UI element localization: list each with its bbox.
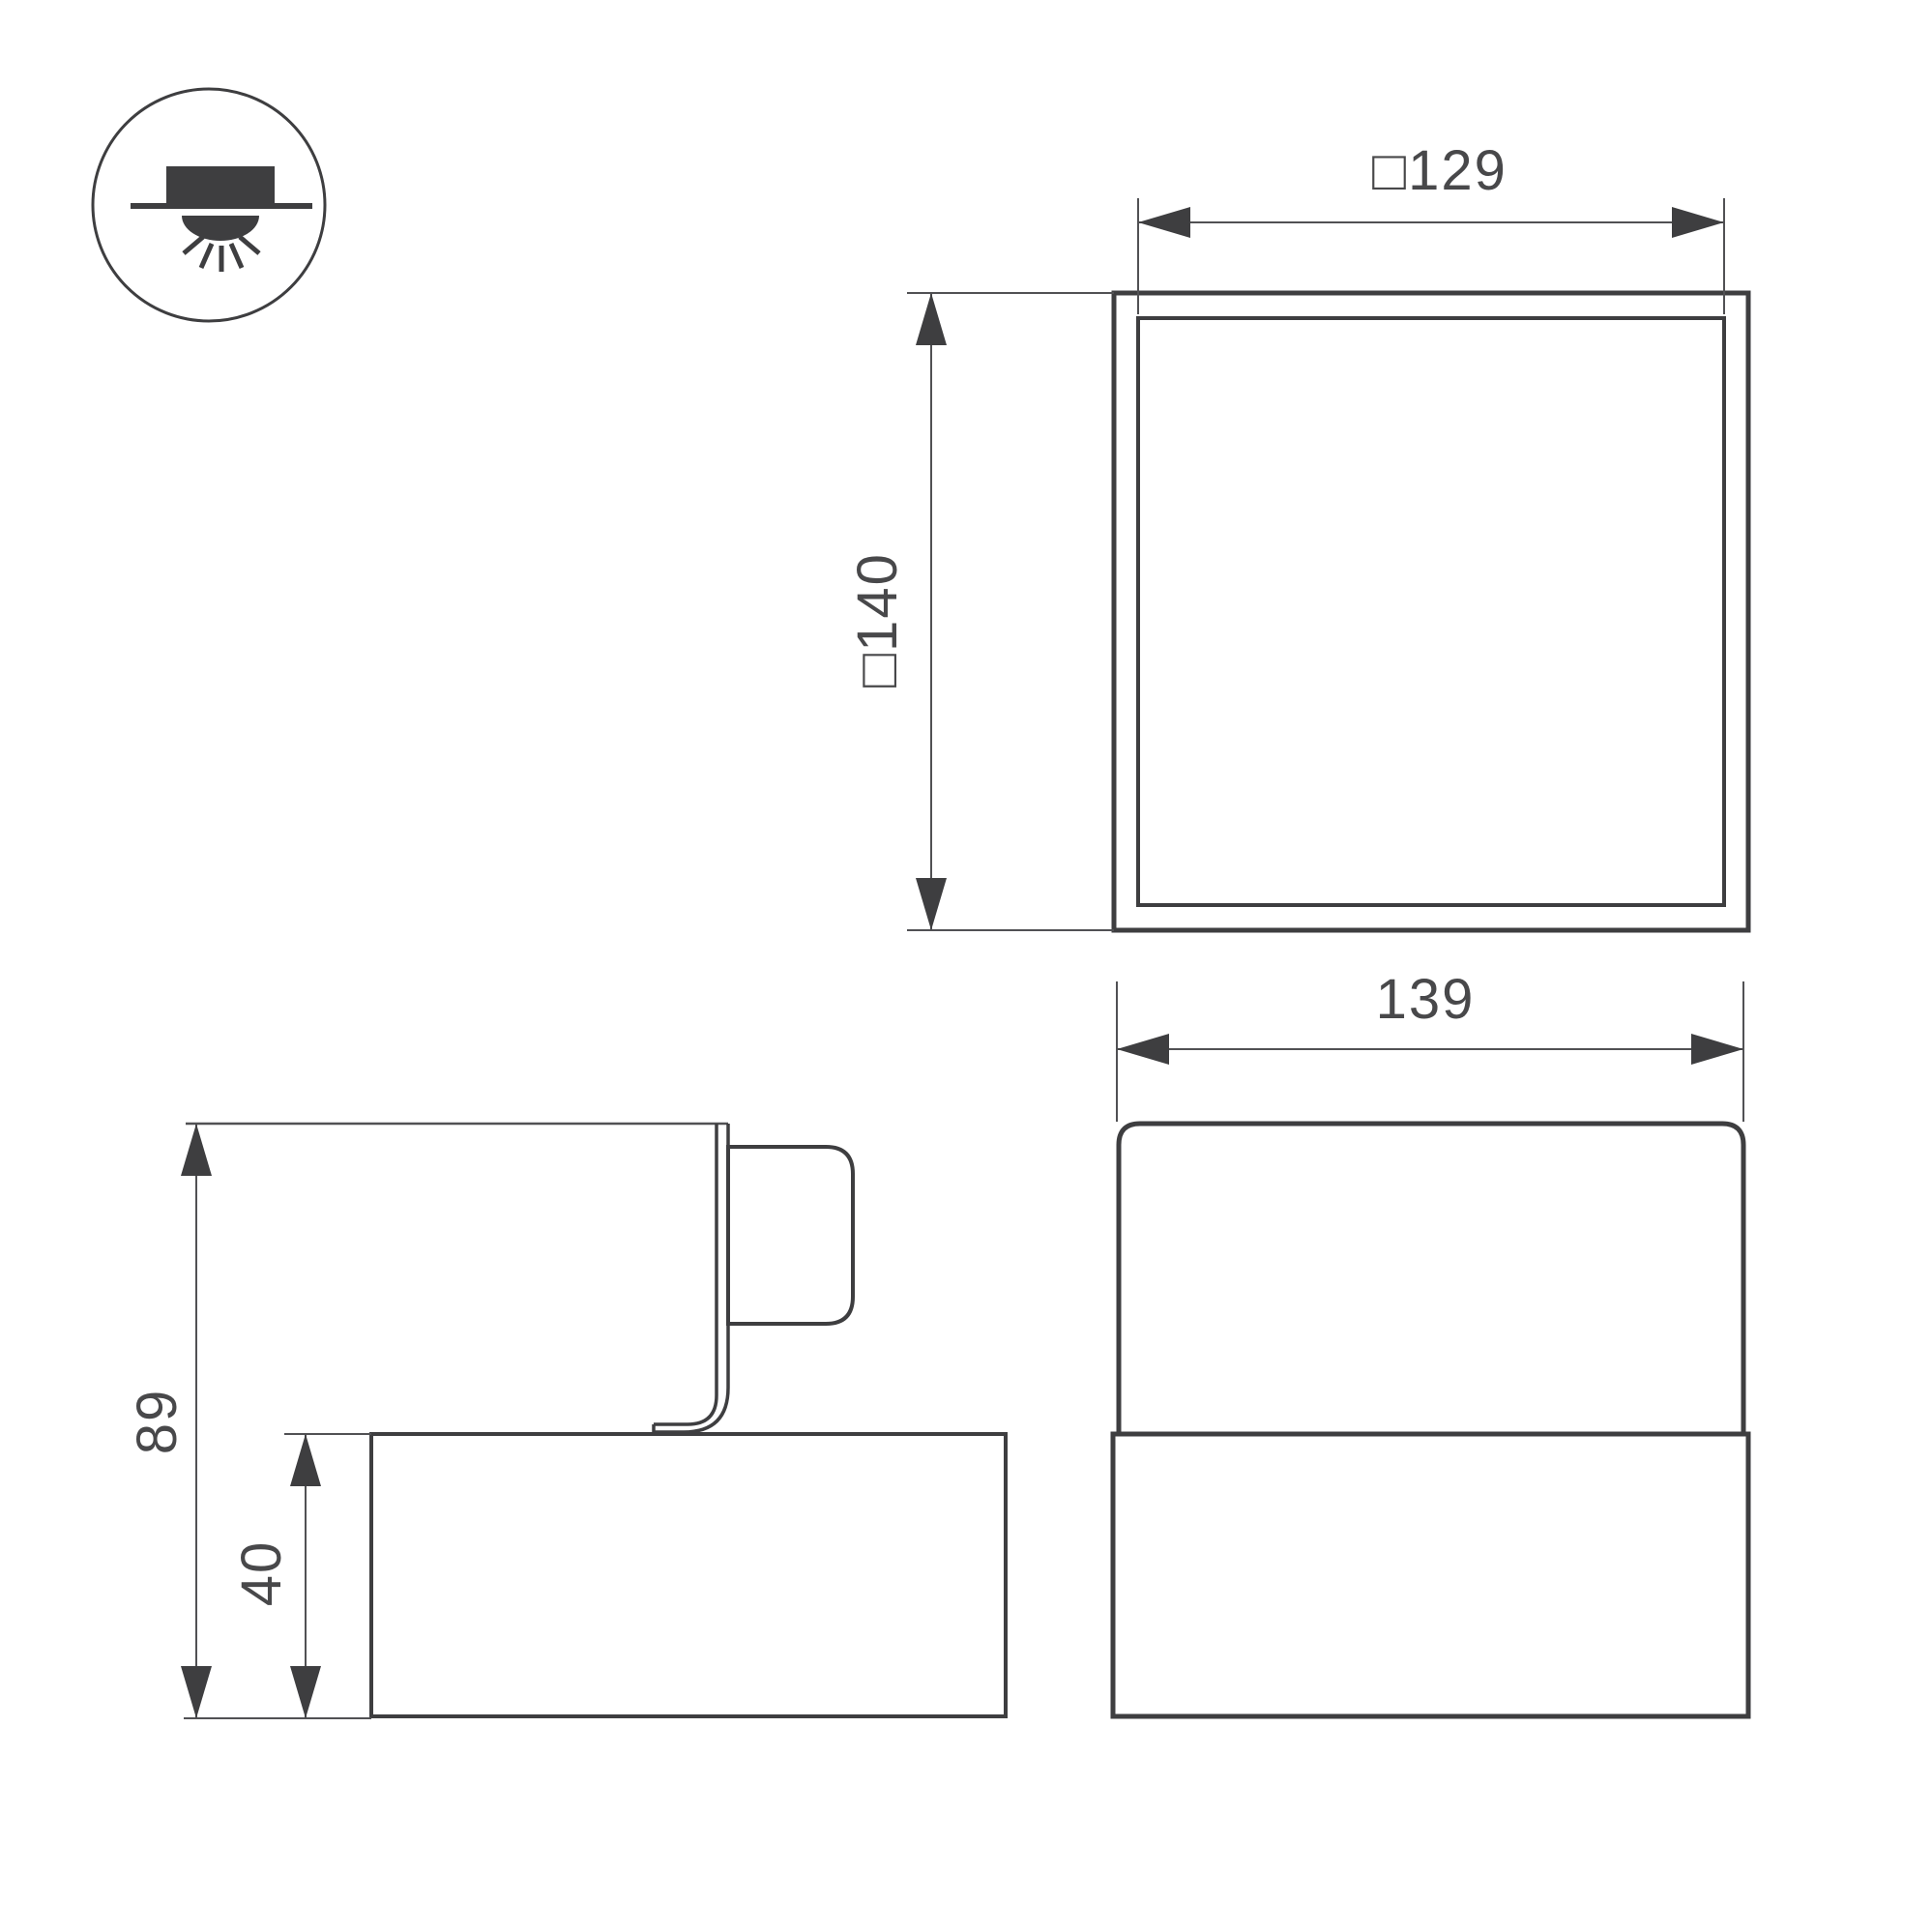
dim-label-side-view-total-height: 89 (130, 1389, 186, 1455)
dim-label-top-view-height: □140 (850, 552, 906, 688)
dim-40-arrow-up (290, 1434, 321, 1486)
dim-129-arrow-right (1672, 207, 1724, 238)
top-view (907, 198, 1748, 930)
bracket-inner-contour (654, 1124, 717, 1424)
side-view (181, 1124, 1006, 1718)
front-view (1113, 981, 1748, 1716)
icon-ceiling-line (131, 203, 312, 209)
dim-139-arrow-right (1691, 1034, 1743, 1065)
icon-lamp-housing (166, 166, 275, 207)
dim-89-arrow-up (181, 1124, 212, 1176)
dim-40-arrow-down (290, 1666, 321, 1718)
technical-drawing (0, 0, 1932, 1932)
front-view-head (1119, 1124, 1743, 1437)
dim-140 (907, 293, 1114, 930)
icon-light-rays (184, 237, 259, 272)
dim-129-arrow-left (1138, 207, 1190, 238)
side-view-base-box (371, 1434, 1006, 1716)
side-view-mount-bracket (654, 1124, 728, 1432)
dim-140-arrow-up (916, 293, 947, 345)
side-view-clip (728, 1147, 853, 1324)
dim-label-front-view-width: 139 (1376, 972, 1476, 1028)
dim-label-top-view-width: □129 (1372, 143, 1508, 199)
front-view-base-box (1113, 1434, 1748, 1716)
top-view-outer-square (1114, 293, 1748, 930)
recessed-downlight-icon (93, 89, 325, 321)
dim-label-side-view-base-height: 40 (234, 1540, 290, 1607)
dim-139-arrow-left (1117, 1034, 1169, 1065)
icon-light-dome (182, 216, 259, 241)
dim-89-arrow-down (181, 1666, 212, 1718)
dim-89 (184, 1124, 371, 1718)
dim-140-arrow-down (916, 878, 947, 930)
